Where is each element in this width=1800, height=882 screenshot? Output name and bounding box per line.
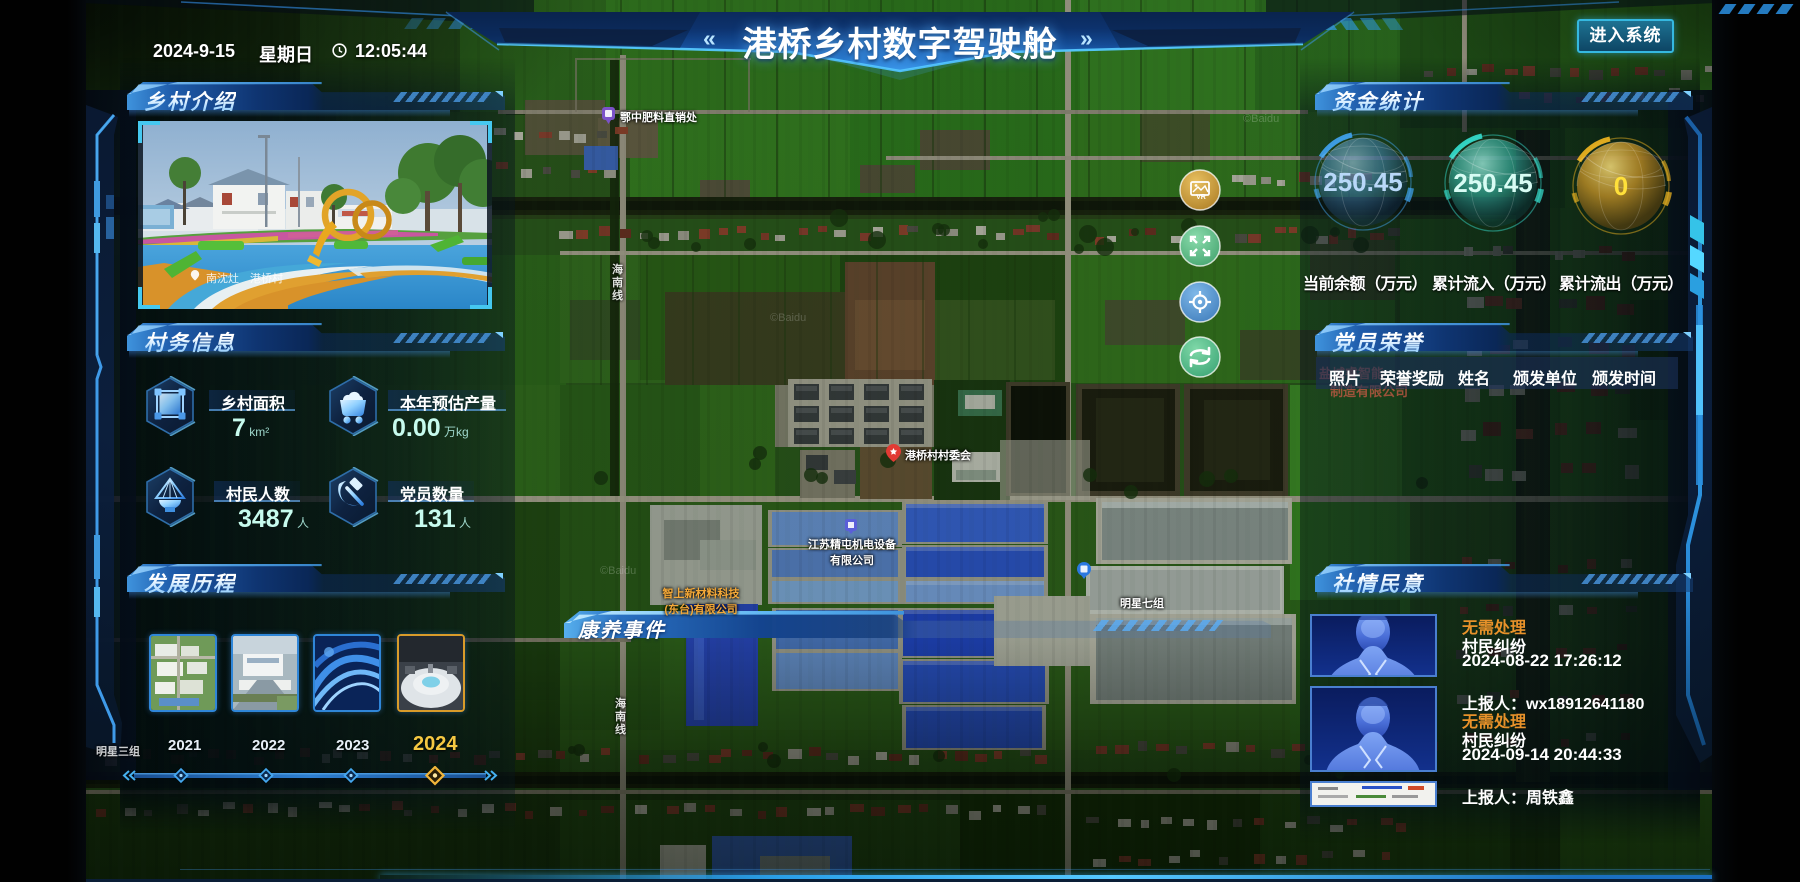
- svg-text:0: 0: [1614, 171, 1628, 201]
- svg-text:南沈灶 港桥村: 南沈灶 港桥村: [206, 271, 283, 285]
- svg-text:250.45: 250.45: [1453, 168, 1533, 198]
- svg-text:250.45: 250.45: [1323, 167, 1403, 197]
- svg-text:VR: VR: [1196, 194, 1206, 201]
